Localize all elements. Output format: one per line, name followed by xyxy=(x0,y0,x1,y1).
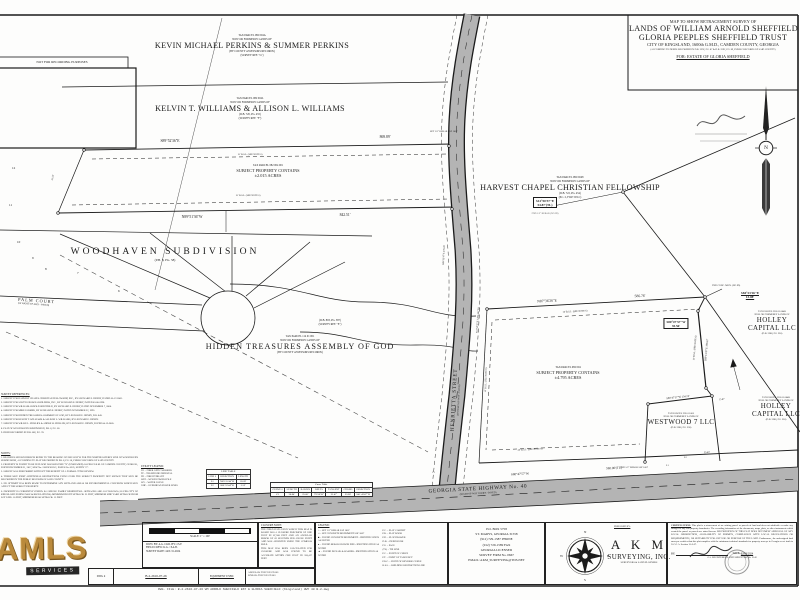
certification-date: 03/03/2024 xyxy=(741,552,753,555)
general-notes-items: 1. BEARINGS SHOWN HEREON REFER TO THE BE… xyxy=(1,456,138,499)
westwood-top-dimension-2: 15.87' xyxy=(719,398,725,402)
title-line3: GLORIA PEEPLES SHEFFIELD TRUST xyxy=(629,33,797,42)
parcel-label-holley1: TAX PARCEL H15 01 004B NOW OR FORMERLY L… xyxy=(748,310,796,335)
lot-number: 6 xyxy=(118,289,120,293)
closure-note-p1: THE FIELD DATA UPON WHICH THIS MAP IS BA… xyxy=(261,528,312,547)
equipment-used-label: EQUIPMENT USED: xyxy=(199,569,246,584)
title-block: MAP TO SHOW RETRACEMENT SURVEY OF LANDS … xyxy=(629,19,797,59)
north-arrow-label: N xyxy=(764,145,768,151)
survey-references: SURVEY REFERENCES: 1. SURVEY FOR HARVEST… xyxy=(1,393,138,435)
watermark-text: AMLS xyxy=(0,530,88,568)
plat-linework xyxy=(0,0,800,600)
company-name2: SURVEYING, INC. xyxy=(607,553,670,561)
parcel-label-williams: TAX PARCEL 082 004L NOW OR FORMERLY LAND… xyxy=(155,97,345,120)
jog-dimension-label: S80°47'57"W 35.56' xyxy=(663,318,688,329)
parcel-label-harvest: TAX PARCEL 082 004N NOW OR FORMERLY LAND… xyxy=(480,176,660,199)
legend-symbols: ○ = SET 1/2" REBAR LSF 1067□ = SET CONCR… xyxy=(318,529,381,568)
monument-note-4: FND 1/2" REBAR LSF 1067 xyxy=(620,466,648,469)
date-label: DATE: xyxy=(733,552,741,555)
equipment-used-values: ANGULAR: TOPCON GT-503LINEAR: TOPCON GT-… xyxy=(246,569,314,584)
henrietta-street-road xyxy=(431,15,488,500)
hidden-ref-label: (D.B. 893, PG. 387) (SURVEY REF. "E") xyxy=(319,319,342,326)
distance-strip-bottom: 842.51' xyxy=(340,213,351,218)
certification-text: This plat is a retracement of an existin… xyxy=(671,524,793,546)
line-table: LINE TABLE LINE # DIRECTION LENGTH L1 N0… xyxy=(206,469,251,489)
prepared-by-label: PREPARED BY: xyxy=(614,525,630,528)
closure-note-box: CLOSURE NOTE: THE FIELD DATA UPON WHICH … xyxy=(258,522,315,568)
dwg-file-path: DWG. FILE: B-2-2616-07-26 WM ARNOLD SHEF… xyxy=(158,588,329,591)
survey-date-line: SURVEY DATE: JAN-31-2024 xyxy=(146,550,254,554)
highway-distance-2: 55.60' xyxy=(704,451,710,454)
compass-s-label: S xyxy=(584,578,586,582)
corner-dimension-label: S84°23'26"E 13.08' xyxy=(741,291,759,299)
tie-line-label: S12°50'37"E 54.87'(TL) xyxy=(533,197,557,208)
general-notes: NOTES: 1. BEARINGS SHOWN HEREON REFER TO… xyxy=(1,452,138,500)
title-line2: LANDS OF WILLIAM ARNOLD SHEFFIELD ESTATE… xyxy=(629,24,797,33)
parcel-label-westwood: TAX PARCEL H15 01 005 NOW OR FORMERLY LA… xyxy=(648,412,715,429)
closure-note-p2: THIS MAP HAS BEEN CALCULATED FOR CLOSURE… xyxy=(261,547,312,560)
company-tagline: SURVEYORS & LAND PLANNERS xyxy=(607,561,670,564)
dwg-number-label: DWG # xyxy=(89,569,114,584)
woodhaven-ref: (P.B. 8, PG. 58) xyxy=(155,258,176,262)
not-for-recording-note: NOT FOR RECORDING PURPOSES xyxy=(36,60,87,64)
monument-note-2: FND 1/2" REBAR (NO ID) xyxy=(532,212,559,215)
bearing-strip-top: S89°52'36"E xyxy=(160,139,179,144)
address-lines: P.O. BOX 5758ST. MARYS, GEORGIA 31558(91… xyxy=(449,527,544,562)
watermark-subtext: SERVICES xyxy=(26,566,79,575)
survey-sheet: NOT FOR RECORDING PURPOSES MAP TO SHOW R… xyxy=(0,0,800,600)
title-for-line: FOR: ESTATE OF GLORIA SHEFFIELD xyxy=(629,54,797,59)
parcel-label-holley2: TAX PARCEL H15 01 004B NOW OR FORMERLY L… xyxy=(752,396,800,421)
title-line5: (ACCORDING TO DEEDS RECORDED IN D.B. 229… xyxy=(629,48,797,51)
dwg-equipment-row: DWG # B-2-2616-07-26 EQUIPMENT USED: ANG… xyxy=(88,568,315,585)
scale-caption: SCALE: 1" = 100' xyxy=(143,535,257,539)
utility-legend-items: FO = FIBER OPTIC MARKERTP = TELEPHONE PE… xyxy=(141,469,213,488)
legend-abbreviations: P.C. = PLAT CABINETP.B. = PLAT BOOKP.D. … xyxy=(383,529,446,568)
certification-box: CERTIFICATION: This plat is a retracemen… xyxy=(667,522,797,585)
signature-line xyxy=(676,550,728,556)
distance-strip-top: 869.89' xyxy=(380,135,391,140)
surveyor-line: GA. REGISTERED LAND SURVEYOR No. 3142 xyxy=(671,556,793,559)
harvest-chapel-lines xyxy=(548,118,795,297)
lot-number: 7 xyxy=(77,271,79,275)
bearing-strip-bottom: N89°51'36"W xyxy=(182,215,203,220)
parcel-label-subject2: TAX PARCEL 082 004 SUBJECT PROPERTY CONT… xyxy=(536,366,599,380)
graphic-scale-bar xyxy=(149,528,251,534)
utility-legend: UTILITY LEGEND: FO = FIBER OPTIC MARKERT… xyxy=(141,465,213,487)
address-box: P.O. BOX 5758ST. MARYS, GEORGIA 31558(91… xyxy=(448,522,545,585)
monument-note-1: SET 1/2" REBAR LSF 1067 xyxy=(430,130,458,133)
dwg-number-value: B-2-2616-07-26 xyxy=(114,569,199,584)
lot-number: 10 xyxy=(17,240,20,244)
line-tag-l1: L1 xyxy=(666,464,669,467)
monument-note-3: FND CONC. MON. (NO ID) xyxy=(712,284,740,287)
parcel-label-subject1: TAX PARCEL 082 004 001 SUBJECT PROPERTY … xyxy=(236,164,299,178)
company-name: A K M xyxy=(607,537,670,553)
company-name-block: A K M SURVEYING, INC. SURVEYORS & LAND P… xyxy=(607,537,670,564)
lot-number: 8 xyxy=(45,267,47,271)
scale-admin-box: SCALE: 1" = 100' DWN. BY: A.G. CKD. BY: … xyxy=(142,522,258,568)
compass-w-label: W xyxy=(560,554,563,558)
north-arrow-icon xyxy=(755,86,777,216)
surveyor-signature-stamp xyxy=(695,115,747,141)
compass-n-label: N xyxy=(584,530,586,534)
lot-number: 11 xyxy=(9,203,12,207)
inset-boxes xyxy=(0,57,136,148)
lot-number: 12 xyxy=(12,166,15,170)
woodhaven-name: WOODHAVEN SUBDIVISION xyxy=(71,246,260,257)
bsl-label-1: 15' B.S.L. (SEE NOTE 6) xyxy=(238,153,263,156)
company-box: PREPARED BY: N E S W A K M SURVEYING, IN… xyxy=(545,522,667,585)
by-label: BY: xyxy=(671,552,675,555)
bsl-label-2: 15' B.S.L. (SEE NOTE 6) xyxy=(236,194,261,197)
highway-distance: 580.00'(TL) xyxy=(606,466,622,471)
survey-references-items: 1. SURVEY FOR HARVEST CHAPEL CHRISTIAN F… xyxy=(1,397,138,435)
curve-tag-c1: C1 xyxy=(432,471,435,474)
title-line4: CITY OF KINGSLAND, 1600th G.M.D., CAMDEN… xyxy=(629,42,797,47)
parcel-label-perkins: TAX PARCEL 082 004A NOW OR FORMERLY LAND… xyxy=(155,34,349,57)
amls-watermark-logo: AMLS SERVICES xyxy=(0,530,88,586)
distance-s2-top: 586.76' xyxy=(634,294,645,299)
lot-number: 9 xyxy=(32,256,34,260)
line-tag-l2: L2 xyxy=(684,456,687,459)
parcel-label-hidden: TAX PARCEL 114 01 001 NOW OR FORMERLY LA… xyxy=(206,335,395,355)
legend-box: LEGEND: ○ = SET 1/2" REBAR LSF 1067□ = S… xyxy=(315,522,448,585)
curve-table: Curve Table CURVE # LENGTH RADIUS DELTA … xyxy=(270,482,373,497)
